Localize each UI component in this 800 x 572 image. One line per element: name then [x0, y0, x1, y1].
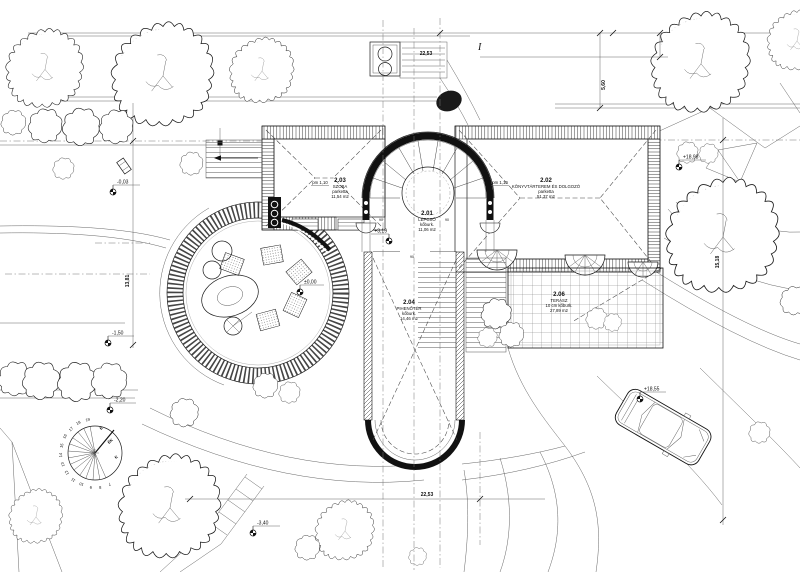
sun-hour: 8: [98, 485, 102, 490]
tree: [6, 28, 84, 107]
elevation-marker: -1,50: [105, 331, 134, 347]
bush: [91, 363, 127, 399]
sun-hour: 7: [107, 482, 112, 488]
sun-hour: 9: [89, 485, 93, 490]
black-planter-box: [268, 197, 281, 228]
room-area: 14,46 m2: [400, 316, 419, 321]
tree: [111, 22, 214, 126]
room-area: 27,89 m2: [550, 308, 569, 313]
bush: [53, 158, 74, 179]
bush: [28, 109, 62, 143]
tree: [9, 489, 63, 544]
dimension-left-side: 13,81: [125, 275, 131, 288]
bush: [279, 382, 300, 403]
bush: [749, 422, 770, 443]
terrace-2-06: [508, 268, 663, 348]
elevation-marker: -3,40: [250, 521, 280, 537]
sun-hour: 12: [63, 469, 70, 476]
garden-chair: [261, 245, 284, 265]
sun-path-diagram: 19 18 17 16 15 14 13 12 11 10 9 8 7 É ÉK…: [58, 416, 122, 490]
dimension-bottom: 22,53: [421, 492, 434, 498]
bush: [180, 152, 203, 175]
tree: [118, 454, 221, 558]
room-area: 11,54 m2: [331, 194, 349, 199]
bush: [62, 108, 99, 145]
tree: [767, 10, 800, 70]
window-sill-label: pm 1,10: [492, 180, 508, 185]
entry-steps-west: [206, 140, 262, 178]
wing-room-202: [455, 126, 660, 277]
bush: [699, 144, 719, 164]
elevation-value: +18,55: [644, 387, 660, 393]
tree: [315, 500, 374, 560]
elevation-value: -3,40: [257, 521, 269, 527]
sun-hour: 19: [85, 416, 91, 422]
chimney: [370, 42, 400, 76]
site-plan-page: 19 18 17 16 15 14 13 12 11 10 9 8 7 É ÉK…: [0, 0, 800, 572]
elevation-marker: -2,20: [107, 398, 136, 414]
elevation-value: +18,98: [683, 155, 699, 161]
garden-bench: [117, 158, 132, 174]
site-plan-drawing: 19 18 17 16 15 14 13 12 11 10 9 8 7 É ÉK…: [0, 0, 800, 572]
tree: [229, 37, 294, 103]
sun-hour: 11: [69, 476, 76, 483]
sun-hour: 18: [75, 419, 82, 426]
bush: [57, 362, 96, 401]
elevation-value: ±0,00: [304, 280, 317, 286]
door-width-label: 90: [445, 218, 449, 222]
sun-hour: 17: [68, 425, 75, 432]
car: [610, 383, 716, 471]
tree: [651, 11, 750, 112]
hall-2-04: [364, 252, 506, 467]
compass-direction: É: [98, 425, 104, 431]
dimension-top: 22,53: [420, 51, 433, 57]
door-width-label: 90: [379, 218, 383, 222]
sun-hour: 14: [58, 452, 63, 457]
sun-hour: 13: [59, 461, 65, 468]
sun-hour: 16: [61, 432, 68, 439]
room-area: 51,37 m2: [537, 194, 556, 199]
door-width-label: 90: [410, 255, 414, 259]
compass-direction: K: [113, 454, 119, 460]
bush: [409, 548, 427, 566]
bush: [170, 398, 198, 427]
section-mark: I: [477, 42, 482, 53]
dimension-right-upper: 5,60: [601, 80, 607, 90]
elevation-value: -2,20: [114, 398, 126, 404]
bush: [780, 286, 800, 315]
tree: [666, 177, 780, 292]
elevation-value: -0,03: [117, 180, 129, 186]
sun-hour: 15: [59, 442, 65, 448]
elevation-value: -1,50: [112, 331, 124, 337]
room-area: 11,06 m2: [418, 227, 436, 232]
compass-direction-labels: É ÉK K: [98, 425, 119, 460]
bush: [22, 362, 59, 399]
bush: [1, 110, 26, 135]
window-sill-label: pm 1,10: [312, 180, 328, 185]
elevation-marker: +3,19: [371, 229, 392, 245]
dark-shrub: [433, 87, 464, 115]
dimension-right-side: 15,18: [715, 256, 721, 269]
sun-hour: 10: [78, 481, 85, 488]
elevation-value: +3,19: [374, 229, 387, 235]
elevation-marker: -0,03: [110, 180, 140, 196]
